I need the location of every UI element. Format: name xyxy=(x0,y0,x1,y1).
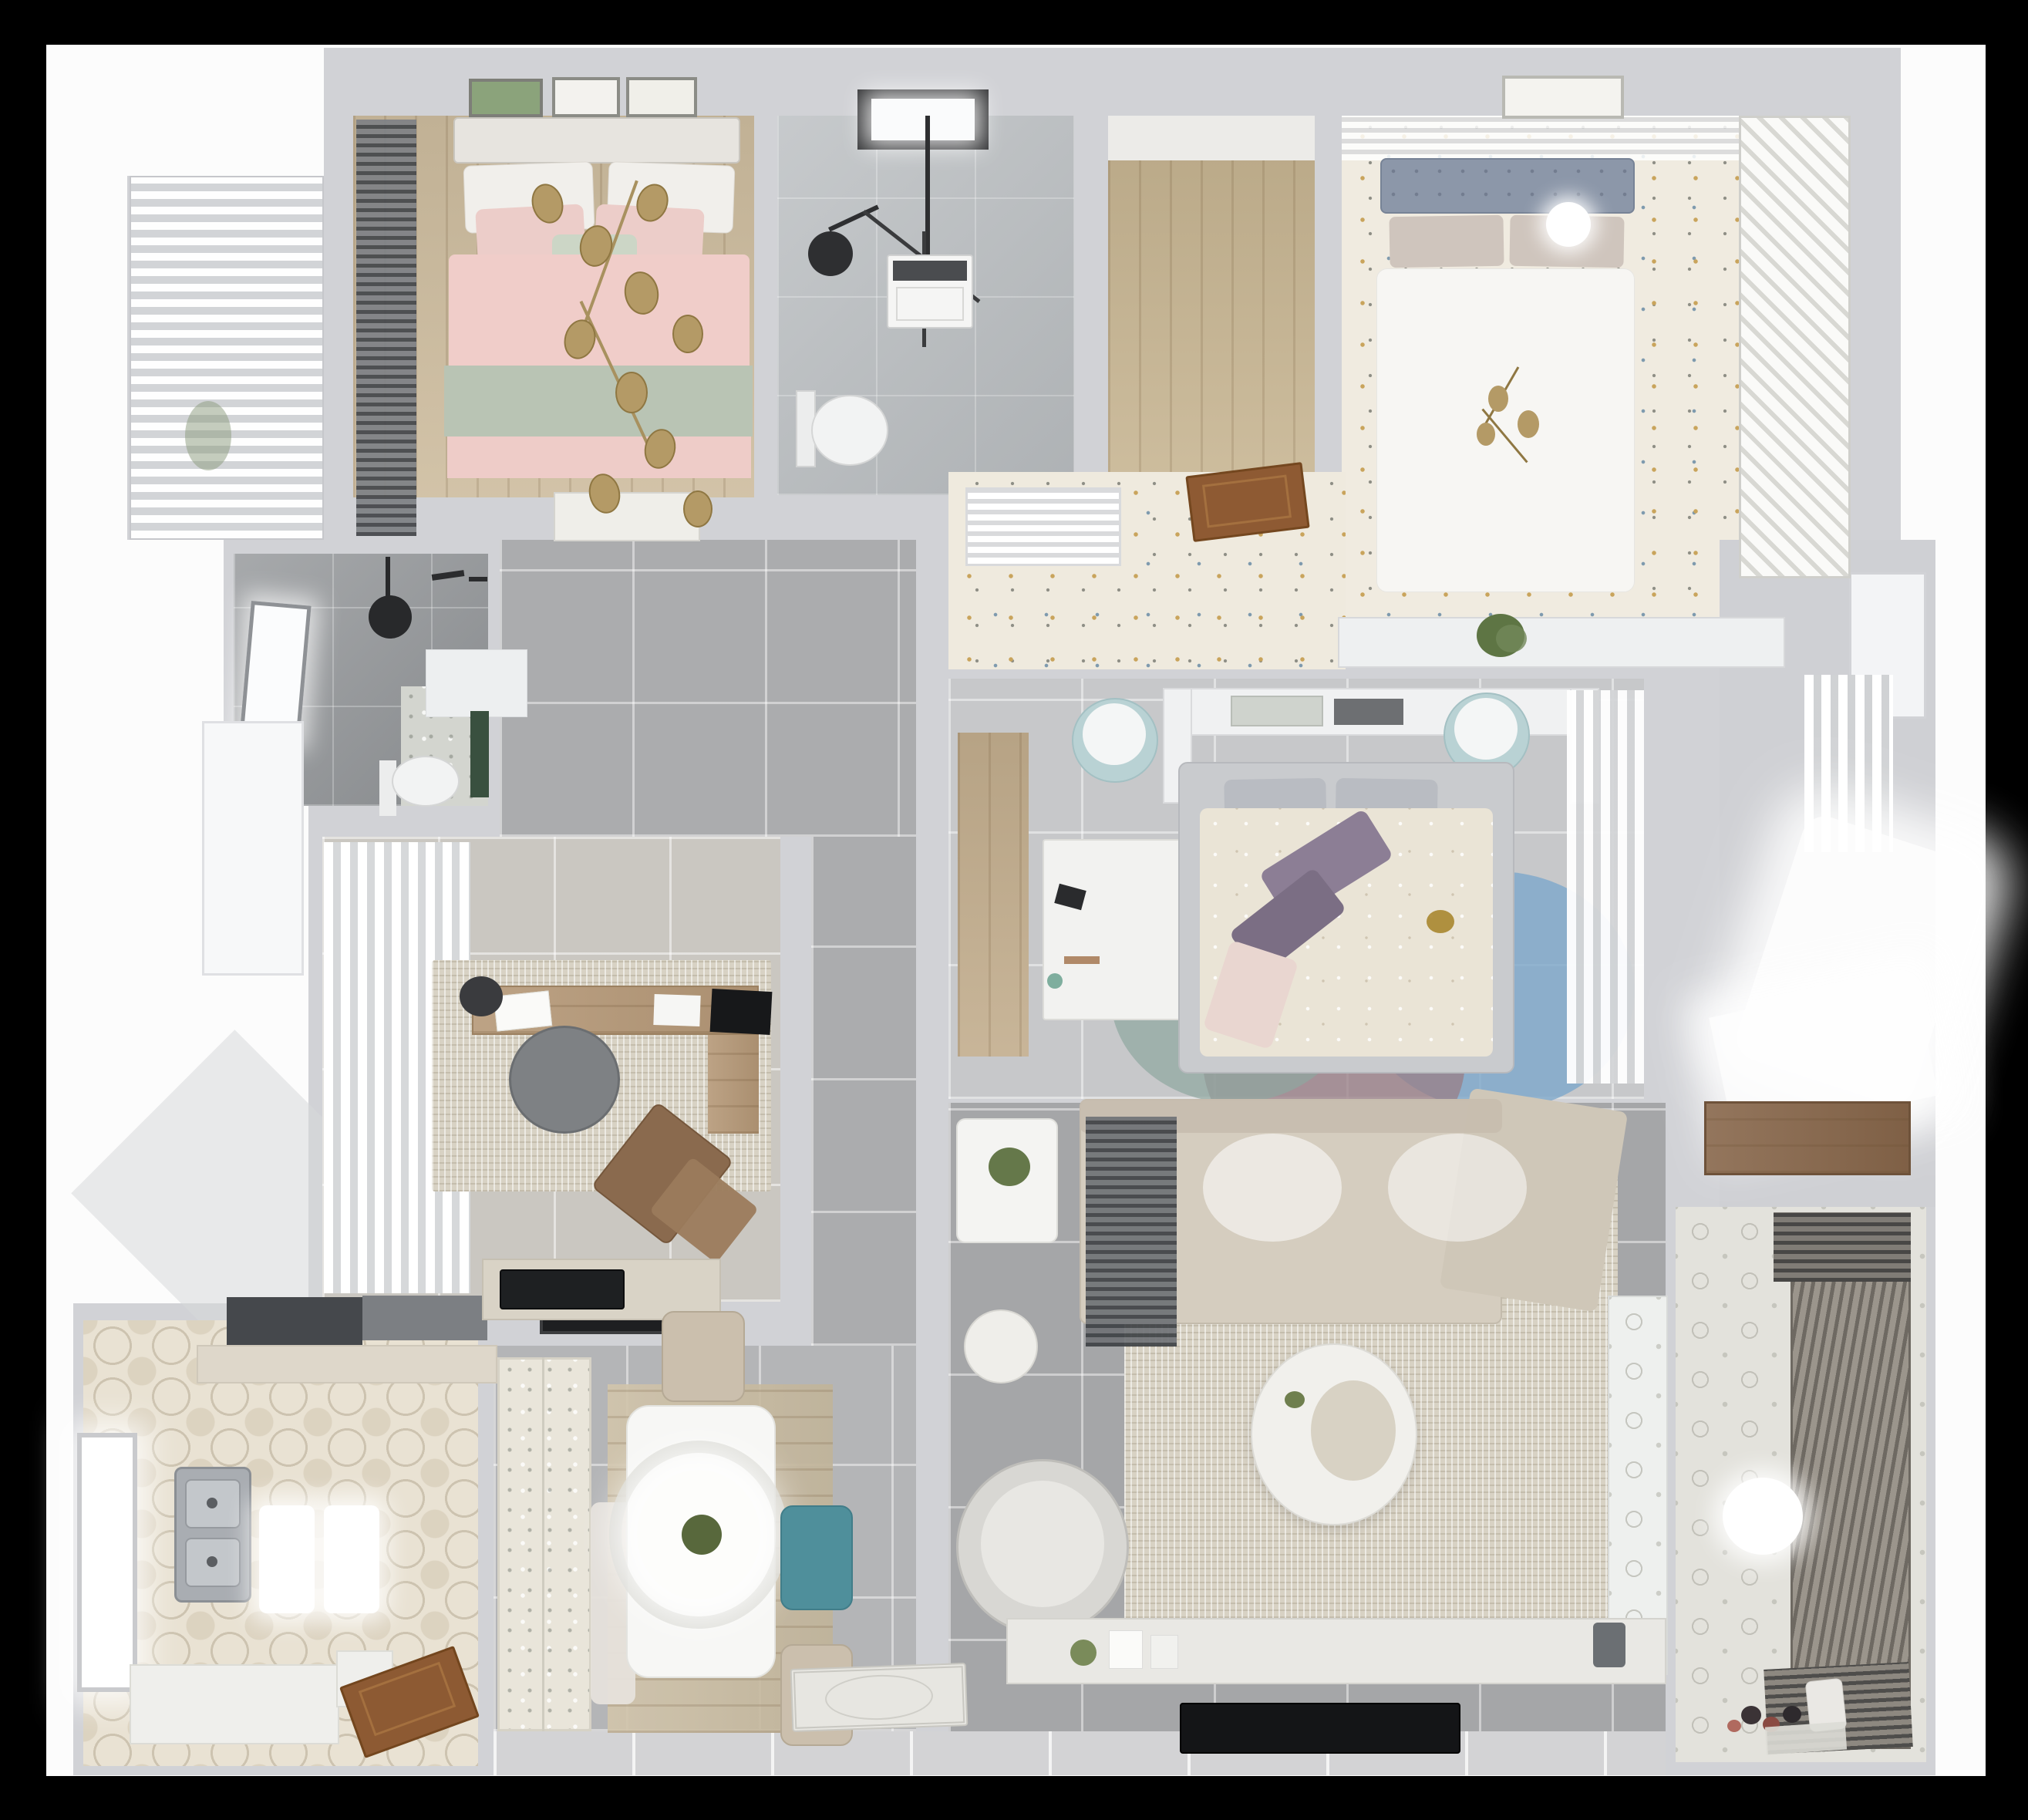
drying-room-mat xyxy=(1765,1721,1847,1754)
bedroom1-frame-middle-art xyxy=(552,77,620,117)
bathroom2-shower-head xyxy=(369,595,412,639)
living-sofa-light-glow xyxy=(1203,1134,1342,1242)
drying-room-toy-3 xyxy=(1783,1706,1801,1723)
bedroom1-duvet-foot xyxy=(447,436,751,478)
bedroom2-headboard xyxy=(1380,158,1635,214)
bedroom2-chandelier-bulb-1 xyxy=(1488,386,1508,412)
kitchen-counter-light-1 xyxy=(259,1505,315,1613)
bedroom2-ball-lamp xyxy=(1546,202,1591,247)
console-plant-highlight xyxy=(1496,625,1527,652)
storage-wall-face xyxy=(1108,116,1315,160)
living-sofa-light-glow-2 xyxy=(1388,1134,1527,1242)
kitchen-sink-drain-2 xyxy=(207,1556,217,1567)
bedroom2-wardrobe-louver xyxy=(1739,116,1851,578)
bedroom2-chandelier-bulb-2 xyxy=(1518,410,1539,438)
knee-wall-console xyxy=(1338,617,1785,668)
hallway-ac-vent xyxy=(965,487,1121,566)
bathroom1-washer-controls xyxy=(893,261,967,281)
bathroom1-washer-door xyxy=(896,287,964,321)
right-wood-shelf xyxy=(1704,1101,1911,1175)
drying-room-toy-1 xyxy=(1741,1706,1761,1724)
bedroom3-shelf-books xyxy=(1231,696,1323,726)
study-monitor xyxy=(710,989,773,1035)
bedroom3-desk xyxy=(1043,839,1181,1020)
storage-floor xyxy=(1108,160,1315,477)
kitchen-sink-drain-1 xyxy=(207,1498,217,1508)
outside-cutout-left-mid xyxy=(73,540,224,806)
drying-room-toy-4 xyxy=(1727,1720,1741,1732)
study-laptop xyxy=(460,976,503,1016)
balcony-left-plant xyxy=(185,401,231,470)
apartment-floor-plan-render xyxy=(0,0,2028,1820)
living-coffee-table-sprig xyxy=(1285,1391,1305,1408)
bedroom3-wood-strip xyxy=(958,733,1029,1057)
living-stool xyxy=(964,1309,1038,1384)
living-sofa-throw-blanket xyxy=(1086,1117,1177,1346)
bedroom1-curtain-panel xyxy=(356,120,416,536)
drying-room-ball-lamp xyxy=(1723,1478,1803,1555)
bedroom3-desk-cup xyxy=(1047,973,1063,989)
bedroom1-chandelier-bulb-6 xyxy=(672,315,703,353)
pantry-cabinet xyxy=(497,1357,591,1731)
bedroom3-pouf-left-top xyxy=(1083,703,1146,765)
bathroom2-green-cabinet xyxy=(470,711,489,797)
bedroom1-frame-green-art xyxy=(469,79,543,117)
bedroom1-dresser xyxy=(554,492,700,541)
bathroom1-toilet-bowl xyxy=(811,395,888,466)
entry-floor-strip xyxy=(494,1731,1666,1775)
outside-cutout-left-upper xyxy=(73,176,127,540)
bedroom3-pouf-right-top xyxy=(1454,698,1518,760)
bathroom2-door-leaf xyxy=(202,721,304,976)
living-tv-panel xyxy=(1180,1703,1460,1754)
bathroom2-shower-arm xyxy=(386,557,390,603)
pantry-cabinet-divider xyxy=(542,1357,544,1731)
bedroom3-desk-tray xyxy=(1064,956,1100,964)
bedroom3-shelf-books-2 xyxy=(1334,699,1403,725)
bedroom2-duvet xyxy=(1376,268,1635,592)
living-console-plant xyxy=(1070,1640,1097,1666)
living-console-speaker xyxy=(1593,1623,1625,1667)
bedroom2-frame-art xyxy=(1502,76,1624,119)
kitchen-counter-top-band xyxy=(197,1345,497,1384)
bedroom3-gold-accent xyxy=(1427,910,1454,933)
bathroom1-skylight-glass xyxy=(871,99,975,140)
kitchen-upper-block xyxy=(362,1296,487,1340)
bathroom2-toilet-bowl xyxy=(392,756,460,807)
kitchen-cooktop xyxy=(500,1269,625,1309)
bedroom1-chandelier-bulb-10 xyxy=(683,490,712,527)
bedroom3-wardrobe-sheer xyxy=(1567,690,1644,1084)
bedroom1-bed-headboard xyxy=(453,117,740,163)
bedroom2-pillow-left xyxy=(1389,215,1504,268)
dining-chair-teal xyxy=(780,1505,853,1610)
living-console-box-1 xyxy=(1109,1630,1143,1669)
study-notepad xyxy=(653,994,700,1026)
kitchen-counter-bottom xyxy=(130,1664,339,1744)
balcony-left-floor xyxy=(130,176,324,540)
outside-cutout-top-left xyxy=(73,48,324,176)
kitchen-counter-light-2 xyxy=(324,1505,379,1613)
corridor-floor-upper xyxy=(500,540,916,837)
outside-cutout-top-right xyxy=(1901,48,1935,540)
bedroom2-chandelier-bulb-3 xyxy=(1477,423,1495,446)
study-desk-return xyxy=(708,1035,759,1134)
living-console-box-2 xyxy=(1150,1635,1178,1669)
bedroom1-chandelier-bulb-7 xyxy=(615,372,648,413)
bathroom2-shower-mat xyxy=(426,649,527,717)
kitchen-window xyxy=(77,1433,137,1692)
kitchen-range-hood xyxy=(227,1297,362,1346)
bathroom1-shower-head xyxy=(808,231,853,276)
living-armchair-seat xyxy=(981,1481,1104,1607)
bedroom1-blanket-sage xyxy=(444,366,753,436)
drying-room-blinds-top xyxy=(1774,1212,1911,1282)
living-tv-console xyxy=(1006,1618,1666,1684)
living-side-table-plant xyxy=(989,1148,1030,1186)
study-chair xyxy=(509,1026,620,1134)
bedroom1-frame-right-art xyxy=(626,77,697,117)
corridor-floor-lower xyxy=(811,837,916,1346)
dining-chair-top xyxy=(662,1311,745,1402)
dining-centerpiece-plant xyxy=(682,1515,722,1555)
bathroom2-fixture-bar-2 xyxy=(469,577,487,581)
living-coffee-table-hole xyxy=(1311,1380,1396,1481)
